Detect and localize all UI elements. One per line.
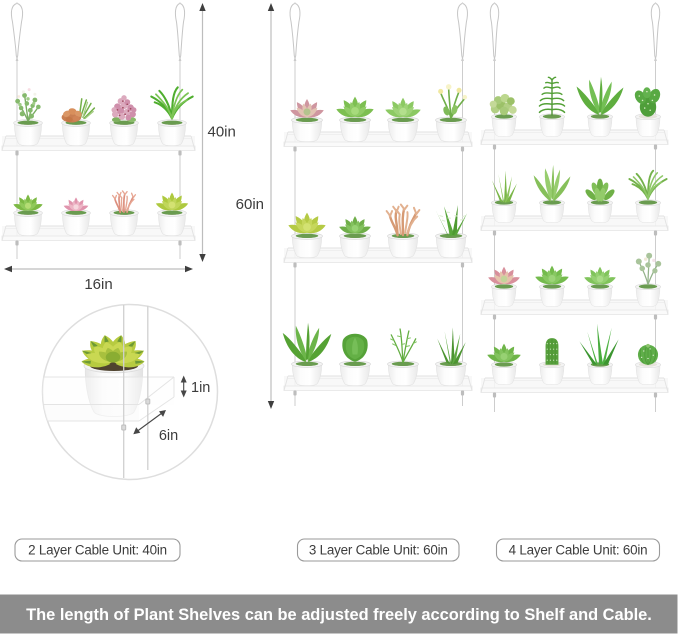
svg-text:2 Layer Cable Unit: 40in: 2 Layer Cable Unit: 40in bbox=[28, 543, 167, 558]
svg-text:4 Layer Cable Unit: 60in: 4 Layer Cable Unit: 60in bbox=[509, 543, 648, 558]
svg-text:1in: 1in bbox=[191, 380, 210, 396]
svg-text:3 Layer Cable Unit: 60in: 3 Layer Cable Unit: 60in bbox=[309, 543, 448, 558]
svg-text:The length of Plant Shelves ca: The length of Plant Shelves can be adjus… bbox=[26, 606, 652, 624]
svg-text:40in: 40in bbox=[208, 124, 236, 141]
svg-text:16in: 16in bbox=[84, 276, 112, 293]
svg-text:60in: 60in bbox=[236, 196, 264, 213]
svg-text:6in: 6in bbox=[159, 428, 178, 444]
